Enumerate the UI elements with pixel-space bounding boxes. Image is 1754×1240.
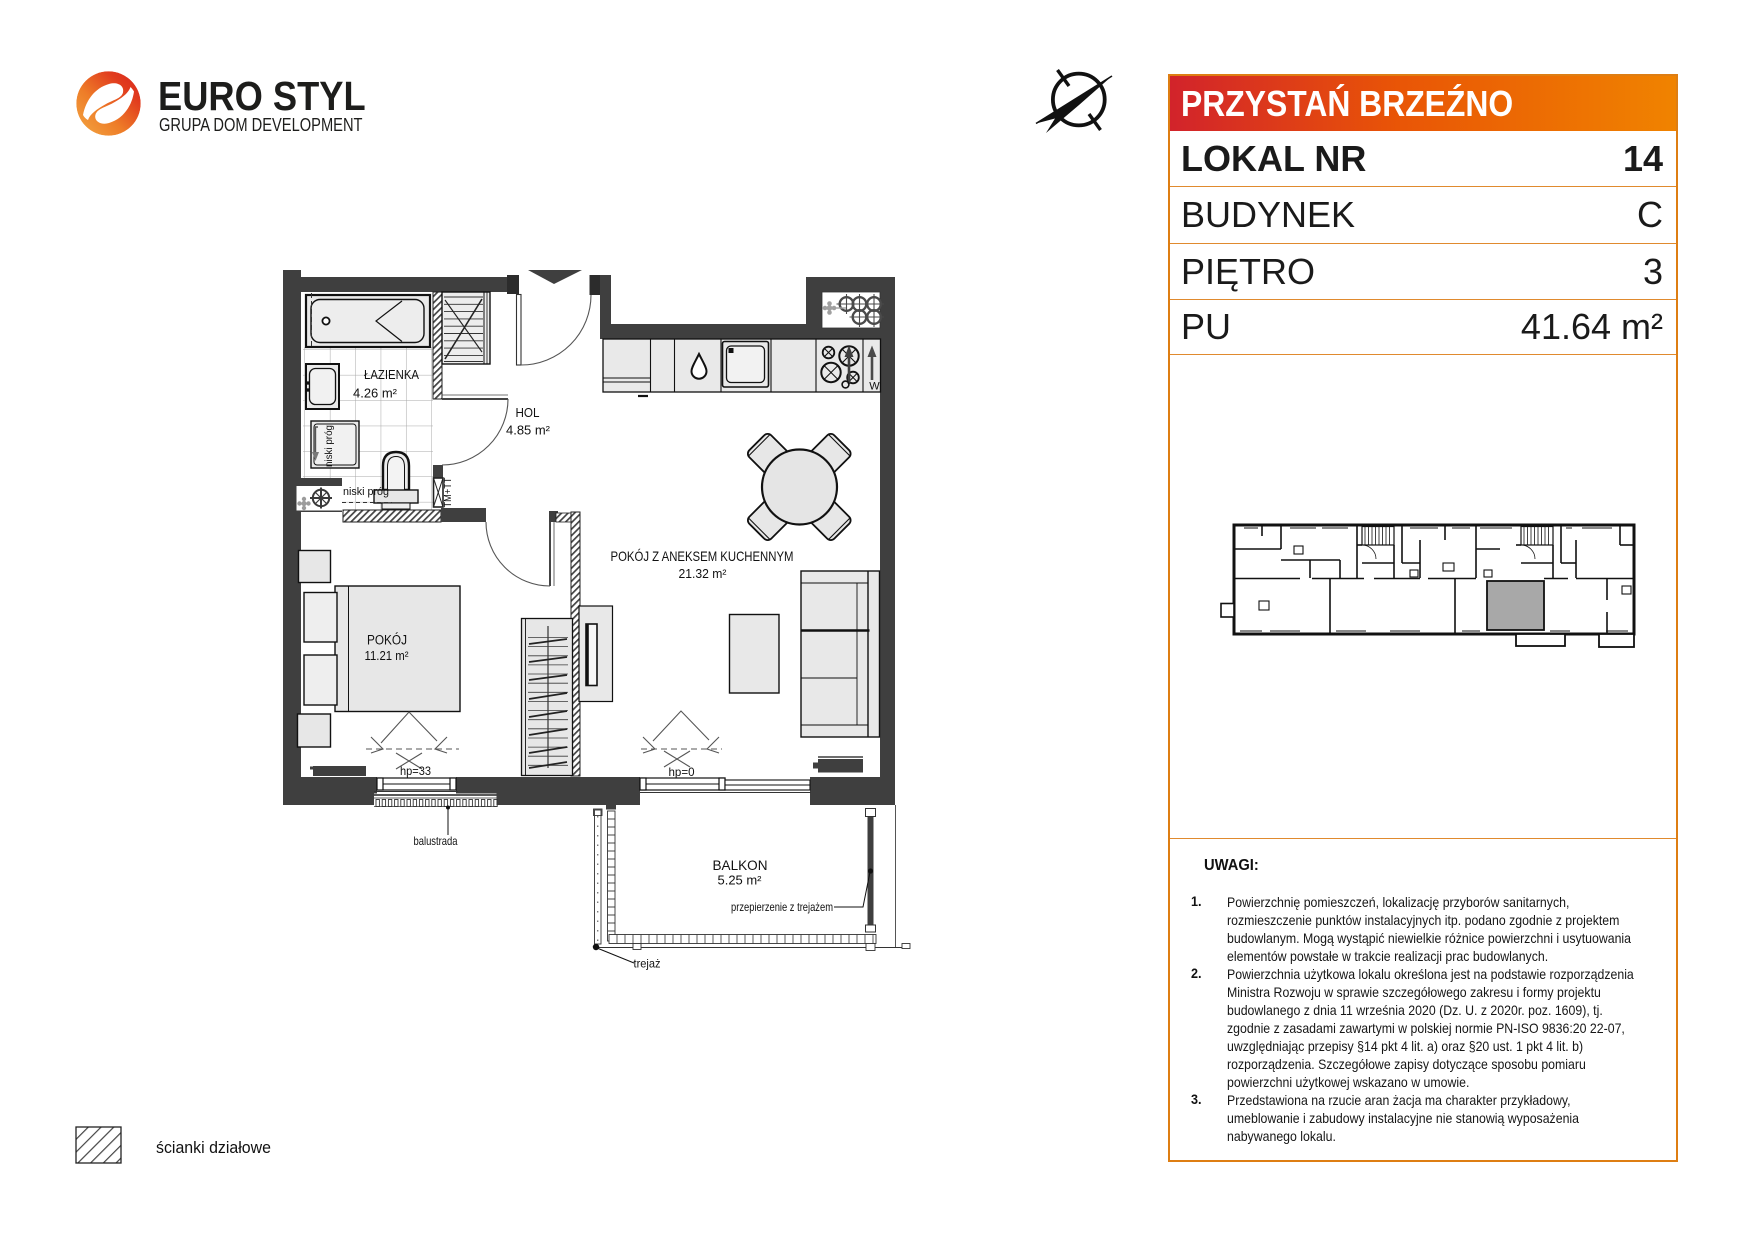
svg-text:4.85 m²: 4.85 m²	[506, 424, 550, 438]
svg-text:ścianki działowe: ścianki działowe	[156, 1138, 271, 1157]
svg-text:11.21 m²: 11.21 m²	[365, 649, 409, 663]
svg-text:4.26 m²: 4.26 m²	[353, 387, 397, 401]
svg-text:BALKON: BALKON	[713, 858, 768, 873]
svg-text:HOL: HOL	[516, 405, 540, 420]
svg-text:POKÓJ Z ANEKSEM KUCHENNYM: POKÓJ Z ANEKSEM KUCHENNYM	[611, 548, 794, 564]
svg-text:5.25 m²: 5.25 m²	[718, 874, 762, 888]
svg-text:ŁAZIENKA: ŁAZIENKA	[364, 367, 419, 382]
svg-text:przepierzenie z trejażem: przepierzenie z trejażem	[731, 900, 833, 914]
svg-text:trejaż: trejaż	[634, 957, 661, 971]
svg-text:POKÓJ: POKÓJ	[367, 633, 407, 648]
svg-text:balustrada: balustrada	[414, 834, 458, 848]
svg-text:niski próg: niski próg	[343, 486, 389, 498]
svg-text:21.32 m²: 21.32 m²	[679, 567, 727, 581]
svg-text:TM+TT: TM+TT	[442, 477, 454, 508]
svg-text:niski próg: niski próg	[323, 425, 335, 467]
svg-text:hp=0: hp=0	[669, 765, 695, 779]
svg-text:W: W	[869, 381, 880, 393]
svg-text:hp=33: hp=33	[400, 764, 431, 778]
